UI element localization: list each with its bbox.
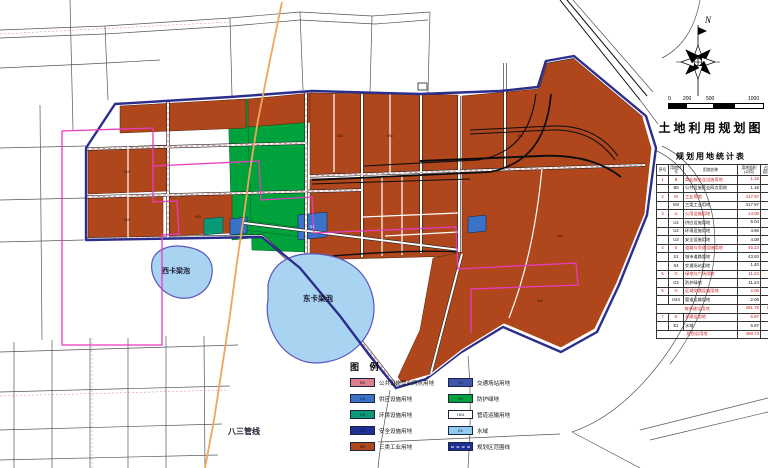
color-swatch: E1 xyxy=(448,426,473,435)
table-cell: 11.24 xyxy=(738,270,761,279)
table-header-cell: 序号 xyxy=(657,165,669,176)
legend-label: 水域 xyxy=(477,427,488,435)
color-swatch: M3 xyxy=(350,442,375,451)
legend-item: U2环境设施用地 xyxy=(350,410,434,419)
legend-item: 规划区范围线 xyxy=(448,442,510,451)
table-cell xyxy=(761,313,768,322)
table-row: U3安全设施用地4.08 xyxy=(657,236,768,245)
table-cell xyxy=(761,261,768,270)
table-cell: 公用设施用地 xyxy=(684,210,738,219)
lakes xyxy=(152,246,374,363)
legend-label: 防护绿地 xyxy=(477,395,499,403)
east-lake-label: 东卡梁泡 xyxy=(303,293,333,304)
table-row: 5G绿地与广场用地11.242.28 xyxy=(657,270,768,279)
table-row: U1供应设施用地5.04 xyxy=(657,218,768,227)
table-cell xyxy=(657,253,669,262)
legend-item: M3三类工业用地 xyxy=(350,442,434,451)
table-cell xyxy=(657,236,669,245)
land-use-planning-map: M3 M3 M3 M3 M3 M3 M3 M3 S1 N 西卡梁泡 东卡梁泡 八… xyxy=(0,0,768,468)
table-cell: 6.97 xyxy=(738,322,761,331)
table-cell xyxy=(657,322,669,331)
table-cell: 工业用地 xyxy=(684,193,738,202)
legend-label: 管道运输用地 xyxy=(477,411,510,419)
table-cell xyxy=(761,184,768,193)
table-cell xyxy=(657,279,669,288)
swatch-code: G2 xyxy=(458,397,463,401)
table-cell: 491.76 xyxy=(738,304,761,313)
swatch-code: E1 xyxy=(458,429,463,433)
svg-text:M3: M3 xyxy=(387,133,393,138)
table-row: U2环境设施用地4.96 xyxy=(657,227,768,236)
swatch-code: H24 xyxy=(457,413,464,417)
table-row: M3三类工业用地417.97 xyxy=(657,201,768,210)
table-cell: 45.23 xyxy=(738,244,761,253)
table-title: 规划用地统计表 xyxy=(656,151,766,162)
table-cell: 商业服务业设施用地 xyxy=(684,176,738,185)
table-cell: 5.04 xyxy=(738,218,761,227)
table-cell: 85.00 xyxy=(761,193,768,202)
table-row: 2M工业用地417.9785.00 xyxy=(657,193,768,202)
table-cell: 2.06 xyxy=(738,296,761,305)
svg-text:M3: M3 xyxy=(557,233,563,238)
color-swatch: B9 xyxy=(350,378,375,387)
legend-item: G2防护绿地 xyxy=(448,394,510,403)
legend-label: 安全设施用地 xyxy=(379,427,412,435)
table-cell xyxy=(761,201,768,210)
legend-label: 三类工业用地 xyxy=(379,443,412,451)
page-title: 土地利用规划图 xyxy=(658,119,764,136)
table-cell: 城市道路用地 xyxy=(684,253,738,262)
table-cell xyxy=(761,296,768,305)
table-cell: 14.08 xyxy=(738,210,761,219)
table-cell: 3 xyxy=(657,210,669,219)
table-cell: G2 xyxy=(669,279,684,288)
table-cell xyxy=(761,330,768,339)
table-cell: 规划总用地 xyxy=(657,330,738,339)
table-cell xyxy=(657,296,669,305)
table-cell xyxy=(761,253,768,262)
table-cell: 2.86 xyxy=(761,210,768,219)
legend-left-column: B9公共设施营业网点用地U1供应设施用地U2环境设施用地U3安全设施用地M3三类… xyxy=(350,378,434,451)
table-cell: E xyxy=(669,313,684,322)
table-cell: 环境设施用地 xyxy=(684,227,738,236)
table-cell: 9.20 xyxy=(761,244,768,253)
table-header-cell: 占城市建设用地(%) xyxy=(761,165,768,176)
table-header-cell: 用地面积(公顷) xyxy=(738,165,761,176)
table-cell: G xyxy=(669,270,684,279)
table-cell xyxy=(761,279,768,288)
table-cell: E1 xyxy=(669,322,684,331)
table-cell: 水域 xyxy=(684,322,738,331)
color-swatch: S4 xyxy=(448,378,473,387)
table-cell: 公共设施营业网点用地 xyxy=(684,184,738,193)
table-row: S1城市道路用地43.83 xyxy=(657,253,768,262)
svg-text:M3: M3 xyxy=(537,298,543,303)
table-cell: 5 xyxy=(657,270,669,279)
table-cell: S xyxy=(669,244,684,253)
table-row: 7E非建设用地6.97 xyxy=(657,313,768,322)
table-cell: 4.08 xyxy=(738,236,761,245)
table-cell: U2 xyxy=(669,227,684,236)
table-cell: 1.40 xyxy=(738,261,761,270)
east-lake xyxy=(267,254,374,363)
table-cell: 城市建设用地 xyxy=(657,304,738,313)
svg-text:M3: M3 xyxy=(124,169,130,174)
table-row: H24管道运输用地2.06 xyxy=(657,296,768,305)
table-cell: 供应设施用地 xyxy=(684,218,738,227)
table-cell: 4.96 xyxy=(738,227,761,236)
scale-bar-blocks xyxy=(668,103,764,109)
table-cell xyxy=(657,218,669,227)
table-cell: U3 xyxy=(669,236,684,245)
table-cell: S4 xyxy=(669,261,684,270)
legend-item: U1供应设施用地 xyxy=(350,394,434,403)
table-cell: 管道运输用地 xyxy=(684,296,738,305)
svg-text:M3: M3 xyxy=(195,214,201,219)
table-cell: 区域交通设施用地 xyxy=(684,287,738,296)
table-cell: M3 xyxy=(669,201,684,210)
table-cell: 交通场站用地 xyxy=(684,261,738,270)
color-swatch: G2 xyxy=(448,394,473,403)
table-cell: 绿地与广场用地 xyxy=(684,270,738,279)
table-row: 3U公用设施用地14.082.86 xyxy=(657,210,768,219)
table-cell: 安全设施用地 xyxy=(684,236,738,245)
table-cell: H24 xyxy=(669,296,684,305)
table-cell: B9 xyxy=(669,184,684,193)
building-footprint xyxy=(418,83,427,90)
table-row: 4S道路与交通设施用地45.239.20 xyxy=(657,244,768,253)
table-cell: 6 xyxy=(657,287,669,296)
table-row: 规划总用地498.73 xyxy=(657,330,768,339)
table-row: G2防护绿地11.24 xyxy=(657,279,768,288)
table-cell: 417.97 xyxy=(738,193,761,202)
table-cell: 2.06 xyxy=(738,287,761,296)
table-cell: 43.83 xyxy=(738,253,761,262)
svg-text:S1: S1 xyxy=(310,224,316,229)
svg-text:M3: M3 xyxy=(337,133,343,138)
swatch-code: U2 xyxy=(360,413,365,417)
table-cell: 498.73 xyxy=(738,330,761,339)
table-cell: 道路与交通设施用地 xyxy=(684,244,738,253)
table-cell: 4 xyxy=(657,244,669,253)
swatch-code: U1 xyxy=(360,397,365,401)
swatch-code: U3 xyxy=(360,429,365,433)
table-cell: S1 xyxy=(669,253,684,262)
table-cell xyxy=(761,227,768,236)
table-cell xyxy=(761,322,768,331)
table-cell: 11.24 xyxy=(738,279,761,288)
table-cell: 非建设用地 xyxy=(684,313,738,322)
table-cell xyxy=(761,218,768,227)
swatch-code: B9 xyxy=(360,381,365,385)
table-header-row: 序号用地代号用地名称用地面积(公顷)占城市建设用地(%) xyxy=(657,165,768,176)
color-swatch: H24 xyxy=(448,410,473,419)
legend-item: S4交通场站用地 xyxy=(448,378,510,387)
table-row: B9公共设施营业网点用地1.18 xyxy=(657,184,768,193)
table-cell xyxy=(761,236,768,245)
table-cell: U1 xyxy=(669,218,684,227)
color-swatch: U1 xyxy=(350,394,375,403)
table-cell: 1.18 xyxy=(738,184,761,193)
table-cell: 1.18 xyxy=(738,176,761,185)
pipeline-label: 八三管线 xyxy=(228,426,260,437)
table-cell xyxy=(657,227,669,236)
table-cell: 0.24 xyxy=(761,176,768,185)
table-cell: 417.97 xyxy=(738,201,761,210)
legend-label: 环境设施用地 xyxy=(379,411,412,419)
north-label: N xyxy=(704,15,712,25)
legend-label: 规划区范围线 xyxy=(477,443,510,451)
table-cell xyxy=(657,261,669,270)
legend-item: H24管道运输用地 xyxy=(448,410,510,419)
table-row: 城市建设用地491.76100.00 xyxy=(657,304,768,313)
table-header-cell: 用地名称 xyxy=(684,165,738,176)
legend-label: 公共设施营业网点用地 xyxy=(379,379,434,387)
swatch-code: M3 xyxy=(360,445,366,449)
table-row: S4交通场站用地1.40 xyxy=(657,261,768,270)
table-cell: 三类工业用地 xyxy=(684,201,738,210)
table-row: 1B商业服务业设施用地1.180.24 xyxy=(657,176,768,185)
color-swatch: U3 xyxy=(350,426,375,435)
table-cell: 6.97 xyxy=(738,313,761,322)
table-cell: M xyxy=(669,193,684,202)
table-cell: B xyxy=(669,176,684,185)
swatch-code: S4 xyxy=(458,381,463,385)
color-swatch: U2 xyxy=(350,410,375,419)
table-cell: 1 xyxy=(657,176,669,185)
table-cell xyxy=(657,201,669,210)
north-arrow: N xyxy=(676,15,720,96)
legend-title: 图 例 xyxy=(350,360,550,373)
legend-label: 交通场站用地 xyxy=(477,379,510,387)
legend-right-column: S4交通场站用地G2防护绿地H24管道运输用地E1水域规划区范围线 xyxy=(448,378,510,451)
table-cell: 0.42 xyxy=(761,287,768,296)
legend-label: 供应设施用地 xyxy=(379,395,412,403)
table-row: 6H区域交通设施用地2.060.42 xyxy=(657,287,768,296)
legend-item: E1水域 xyxy=(448,426,510,435)
table-cell: 7 xyxy=(657,313,669,322)
table-cell: U xyxy=(669,210,684,219)
statistics-table: 规划用地统计表 序号用地代号用地名称用地面积(公顷)占城市建设用地(%) 1B商… xyxy=(656,151,766,339)
boundary-line-swatch xyxy=(448,442,473,451)
scale-bar: 0 200 500 1000 米 xyxy=(668,96,764,109)
table-cell: 防护绿地 xyxy=(684,279,738,288)
table-cell xyxy=(657,184,669,193)
scale-ticks: 0 200 500 1000 xyxy=(668,96,764,102)
table-cell: 100.00 xyxy=(761,304,768,313)
svg-text:M3: M3 xyxy=(124,217,130,222)
west-lake-label: 西卡梁泡 xyxy=(162,266,190,276)
table-row: E1水域6.97 xyxy=(657,322,768,331)
legend-item: B9公共设施营业网点用地 xyxy=(350,378,434,387)
table-cell: 2 xyxy=(657,193,669,202)
table-cell: H xyxy=(669,287,684,296)
table-cell: 2.28 xyxy=(761,270,768,279)
legend: 图 例 B9公共设施营业网点用地U1供应设施用地U2环境设施用地U3安全设施用地… xyxy=(350,360,550,451)
table-header-cell: 用地代号 xyxy=(669,165,684,176)
svg-text:M3: M3 xyxy=(517,133,523,138)
legend-item: U3安全设施用地 xyxy=(350,426,434,435)
